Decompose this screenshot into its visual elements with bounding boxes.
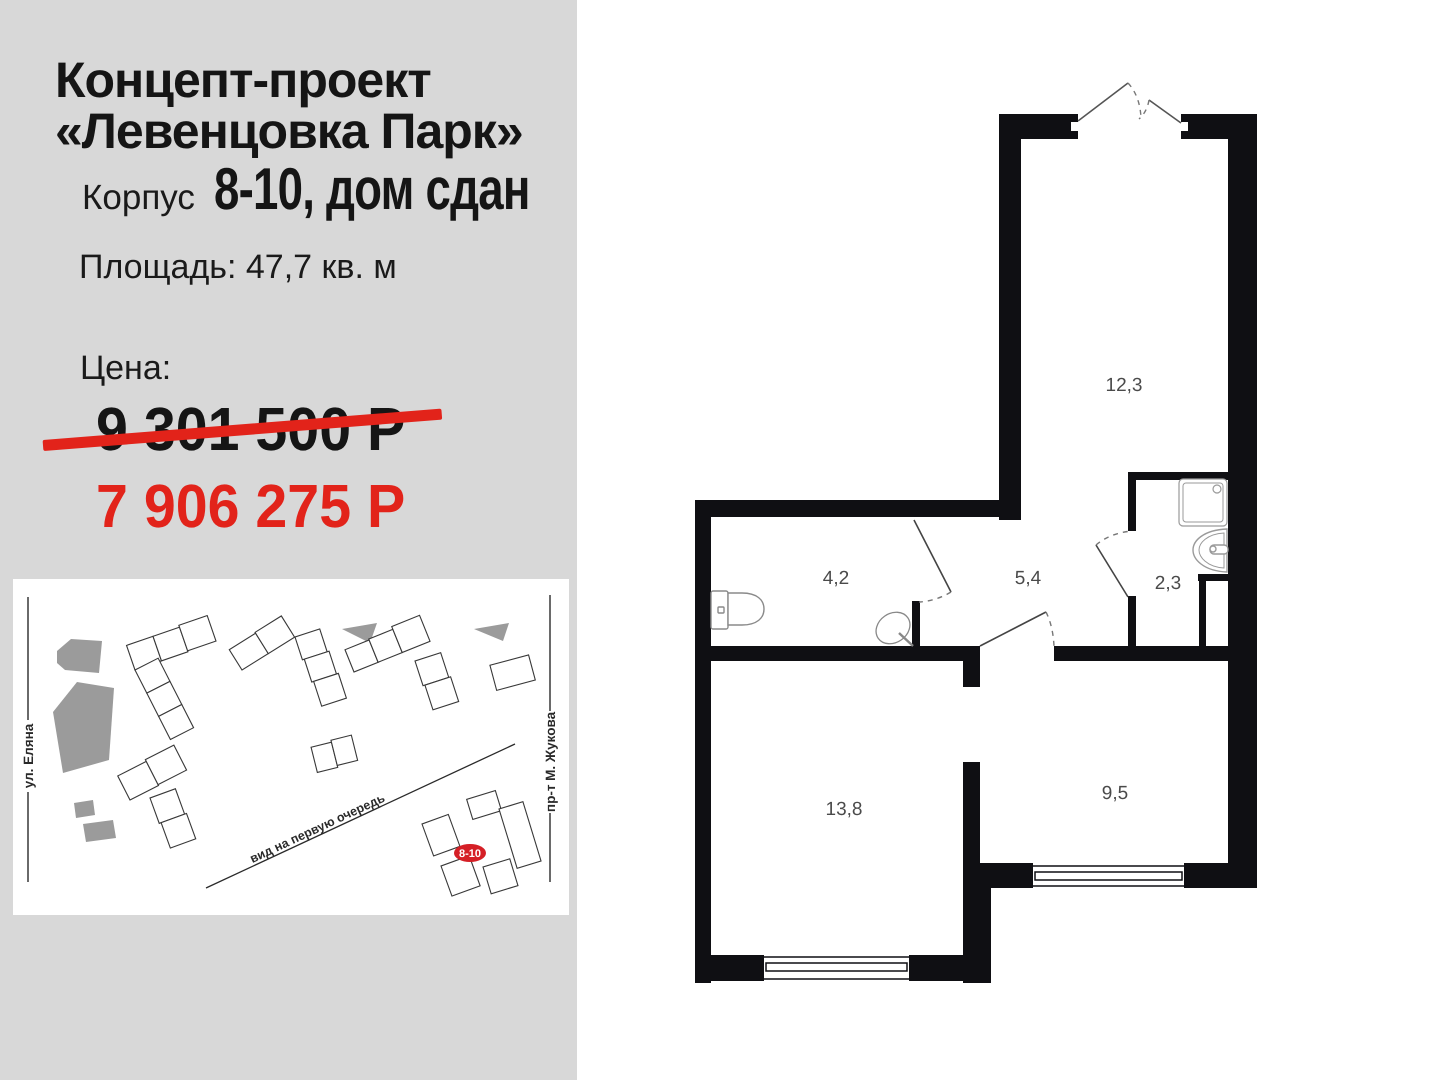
svg-text:9,5: 9,5	[1102, 783, 1128, 804]
svg-text:12,3: 12,3	[1106, 375, 1143, 396]
svg-text:5,4: 5,4	[1015, 568, 1042, 589]
svg-text:13,8: 13,8	[826, 799, 863, 820]
svg-text:4,2: 4,2	[823, 568, 849, 589]
svg-text:2,3: 2,3	[1155, 573, 1181, 594]
